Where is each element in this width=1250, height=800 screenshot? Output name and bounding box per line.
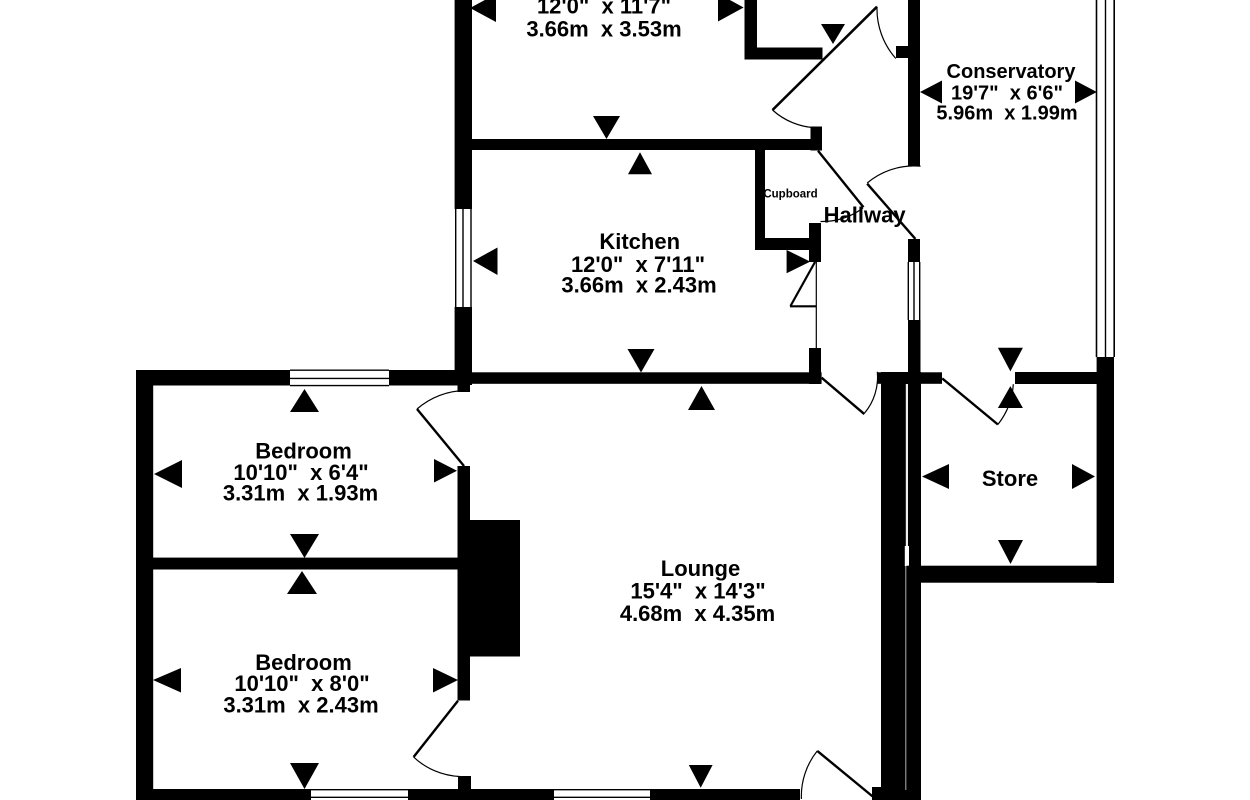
- svg-text:4.68m x 4.35m: 4.68m x 4.35m: [620, 601, 775, 626]
- svg-text:Lounge: Lounge: [661, 556, 740, 581]
- svg-text:3.66m x 2.43m: 3.66m x 2.43m: [561, 273, 716, 298]
- svg-text:3.31m x 2.43m: 3.31m x 2.43m: [223, 693, 378, 718]
- svg-text:Store: Store: [982, 466, 1038, 491]
- svg-text:3.66m x 3.53m: 3.66m x 3.53m: [526, 17, 681, 42]
- svg-text:Cupboard: Cupboard: [763, 189, 817, 201]
- svg-text:3.31m x 1.93m: 3.31m x 1.93m: [223, 481, 378, 506]
- svg-text:5.96m x 1.99m: 5.96m x 1.99m: [936, 103, 1077, 125]
- svg-text:19'7" x 6'6": 19'7" x 6'6": [951, 83, 1063, 105]
- svg-text:Conservatory: Conservatory: [947, 61, 1077, 83]
- svg-text:Kitchen: Kitchen: [599, 229, 680, 254]
- svg-text:15'4" x 14'3": 15'4" x 14'3": [630, 579, 765, 604]
